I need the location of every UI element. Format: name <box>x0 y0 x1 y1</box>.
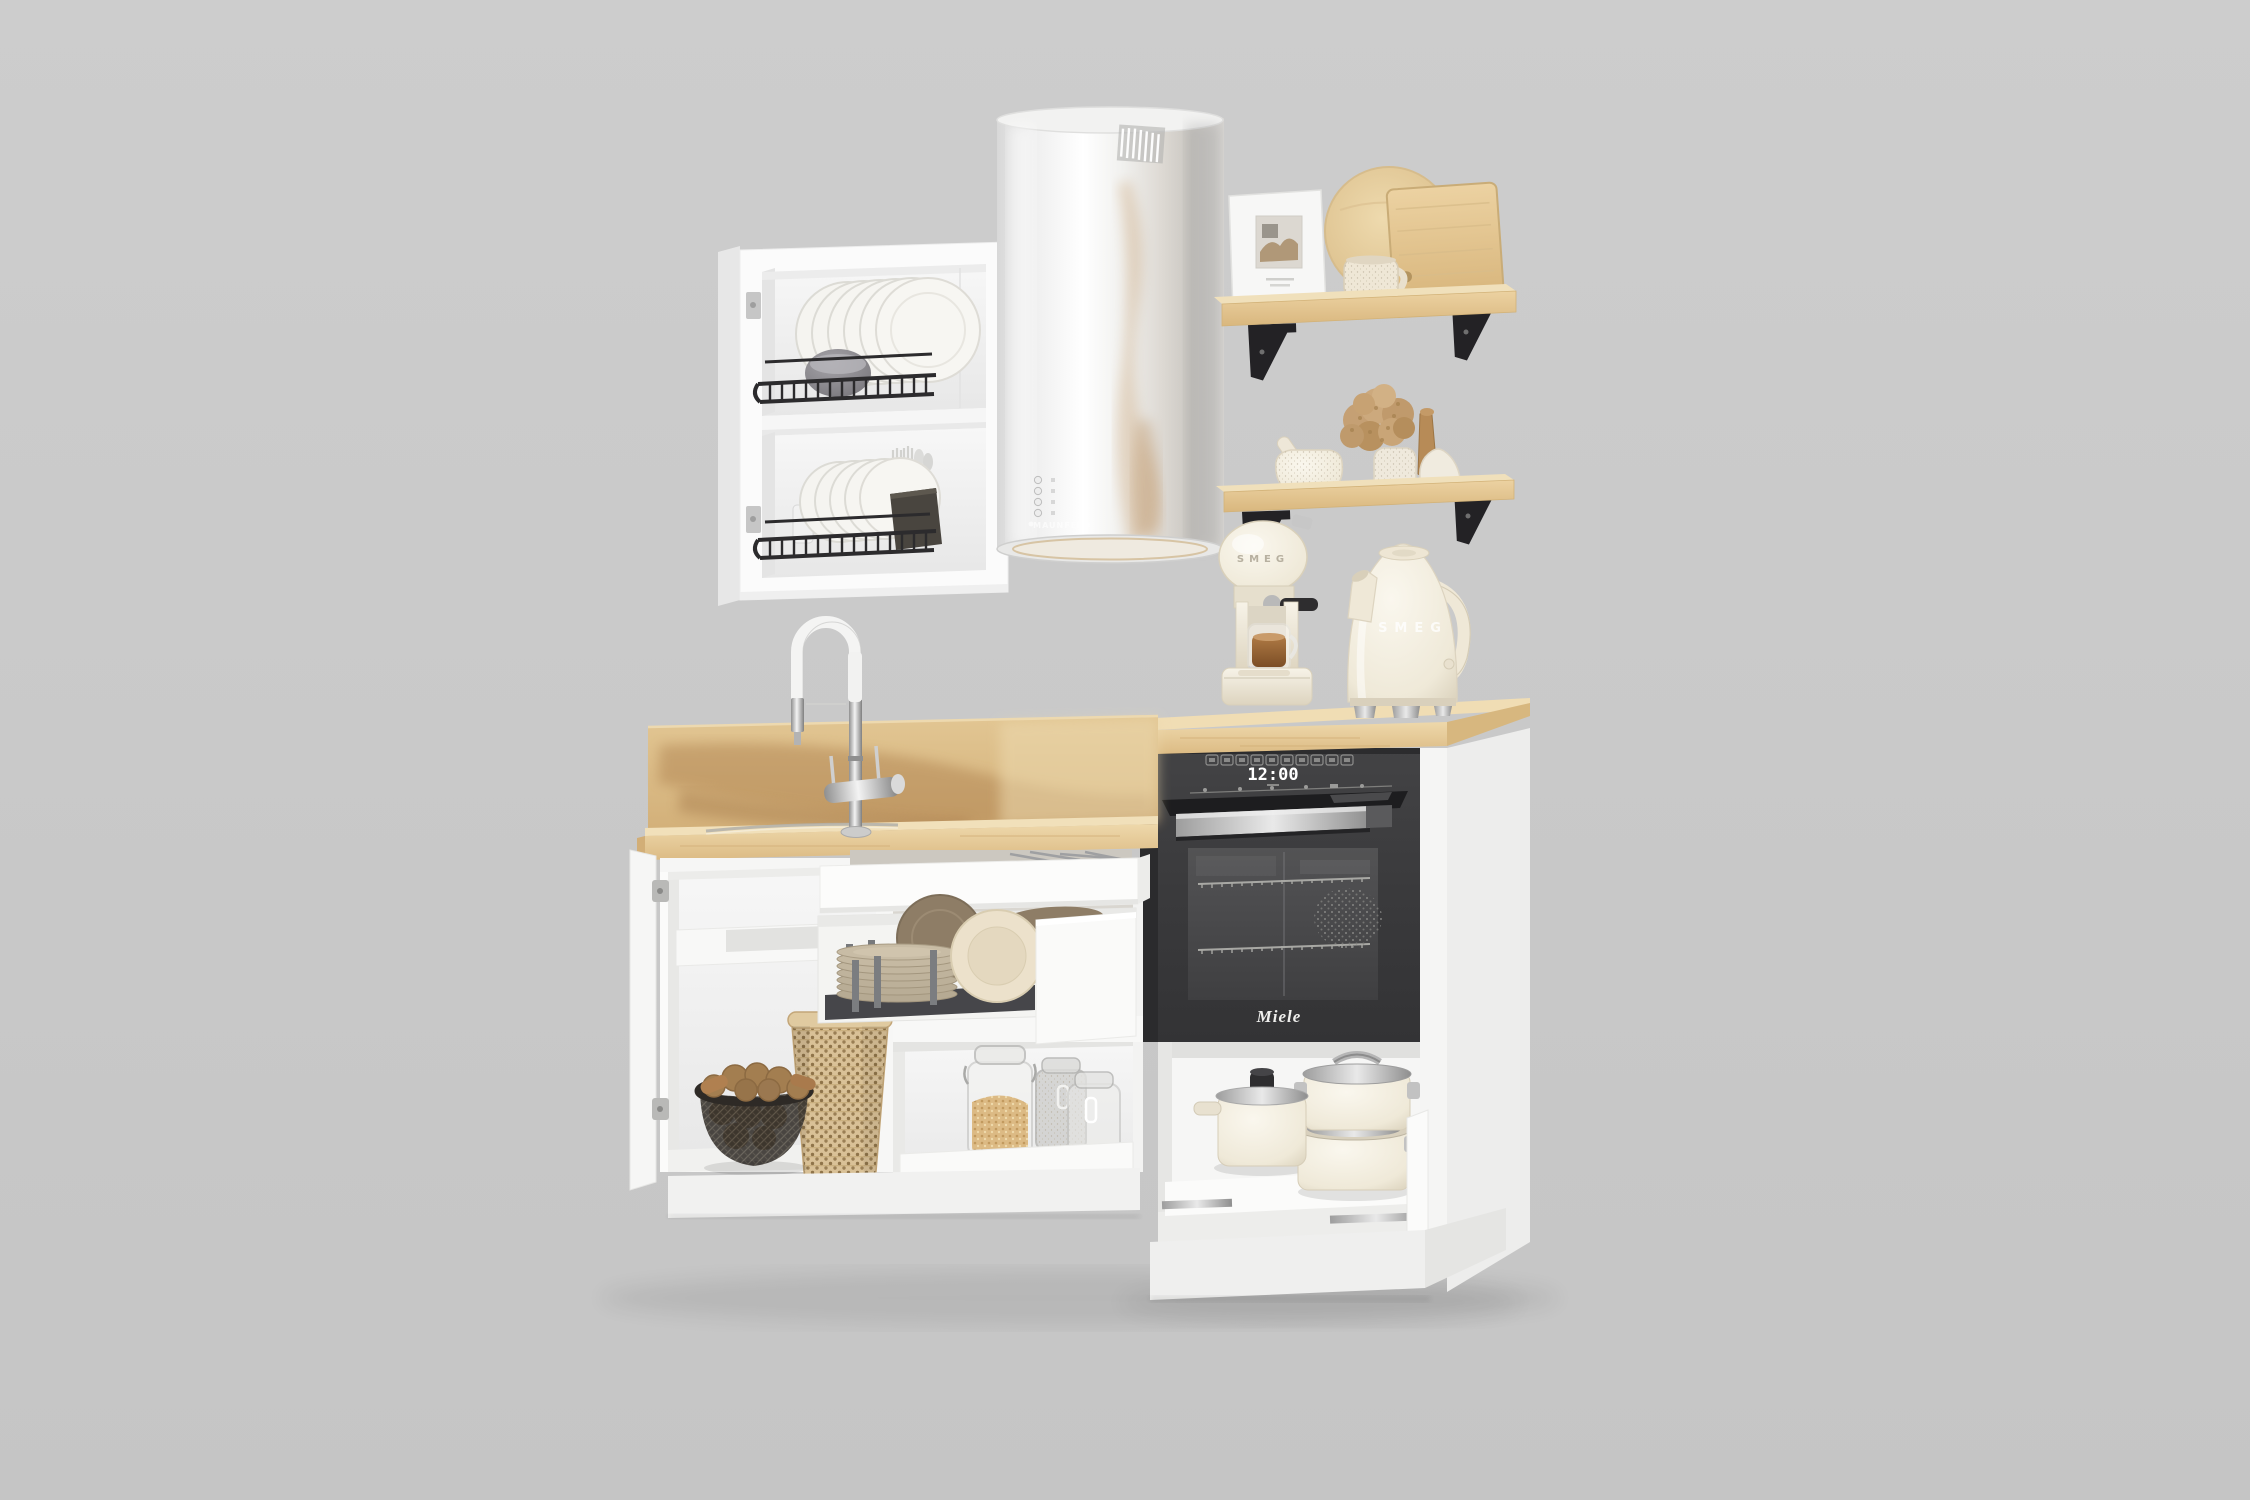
wall-cabinet-side <box>718 246 740 606</box>
hood-brand-label: MAUNFELD <box>1033 521 1091 530</box>
oven-clock-display: 12:00 <box>1247 765 1298 785</box>
glass-cup-with-coffee <box>1248 624 1296 671</box>
pot-drawer-compartment <box>1158 1042 1428 1242</box>
faucet-sprayer <box>791 698 804 732</box>
kettle-base <box>1350 698 1456 706</box>
faucet-base-flange <box>841 827 871 838</box>
grain-jar <box>964 1046 1035 1156</box>
oven-brand-logo: Miele <box>1256 1007 1302 1026</box>
column-side-panel <box>1447 728 1530 1292</box>
plinth-left <box>668 1168 1140 1218</box>
oven-fan-reflection <box>1314 888 1382 948</box>
wall-cabinet <box>718 242 1008 606</box>
coffee-machine-brand: SMEG <box>1237 554 1289 565</box>
cutlery-drawer-open <box>820 850 1150 913</box>
oven: 12:00 <box>1140 748 1420 1042</box>
kitchen-render-stage: MAUNFELD <box>0 0 2250 1500</box>
kettle-brand: SMEG <box>1378 621 1448 636</box>
kitchen-scene: MAUNFELD <box>0 0 2250 1500</box>
oven-door-glass <box>1188 848 1382 1000</box>
range-hood: MAUNFELD <box>997 107 1224 563</box>
plinth-right-front <box>1150 1230 1425 1300</box>
plate-drawer-front-panel <box>1036 912 1136 1044</box>
pot-drawer-front-panel <box>1407 1110 1428 1242</box>
hood-vent-slats <box>1117 124 1165 163</box>
